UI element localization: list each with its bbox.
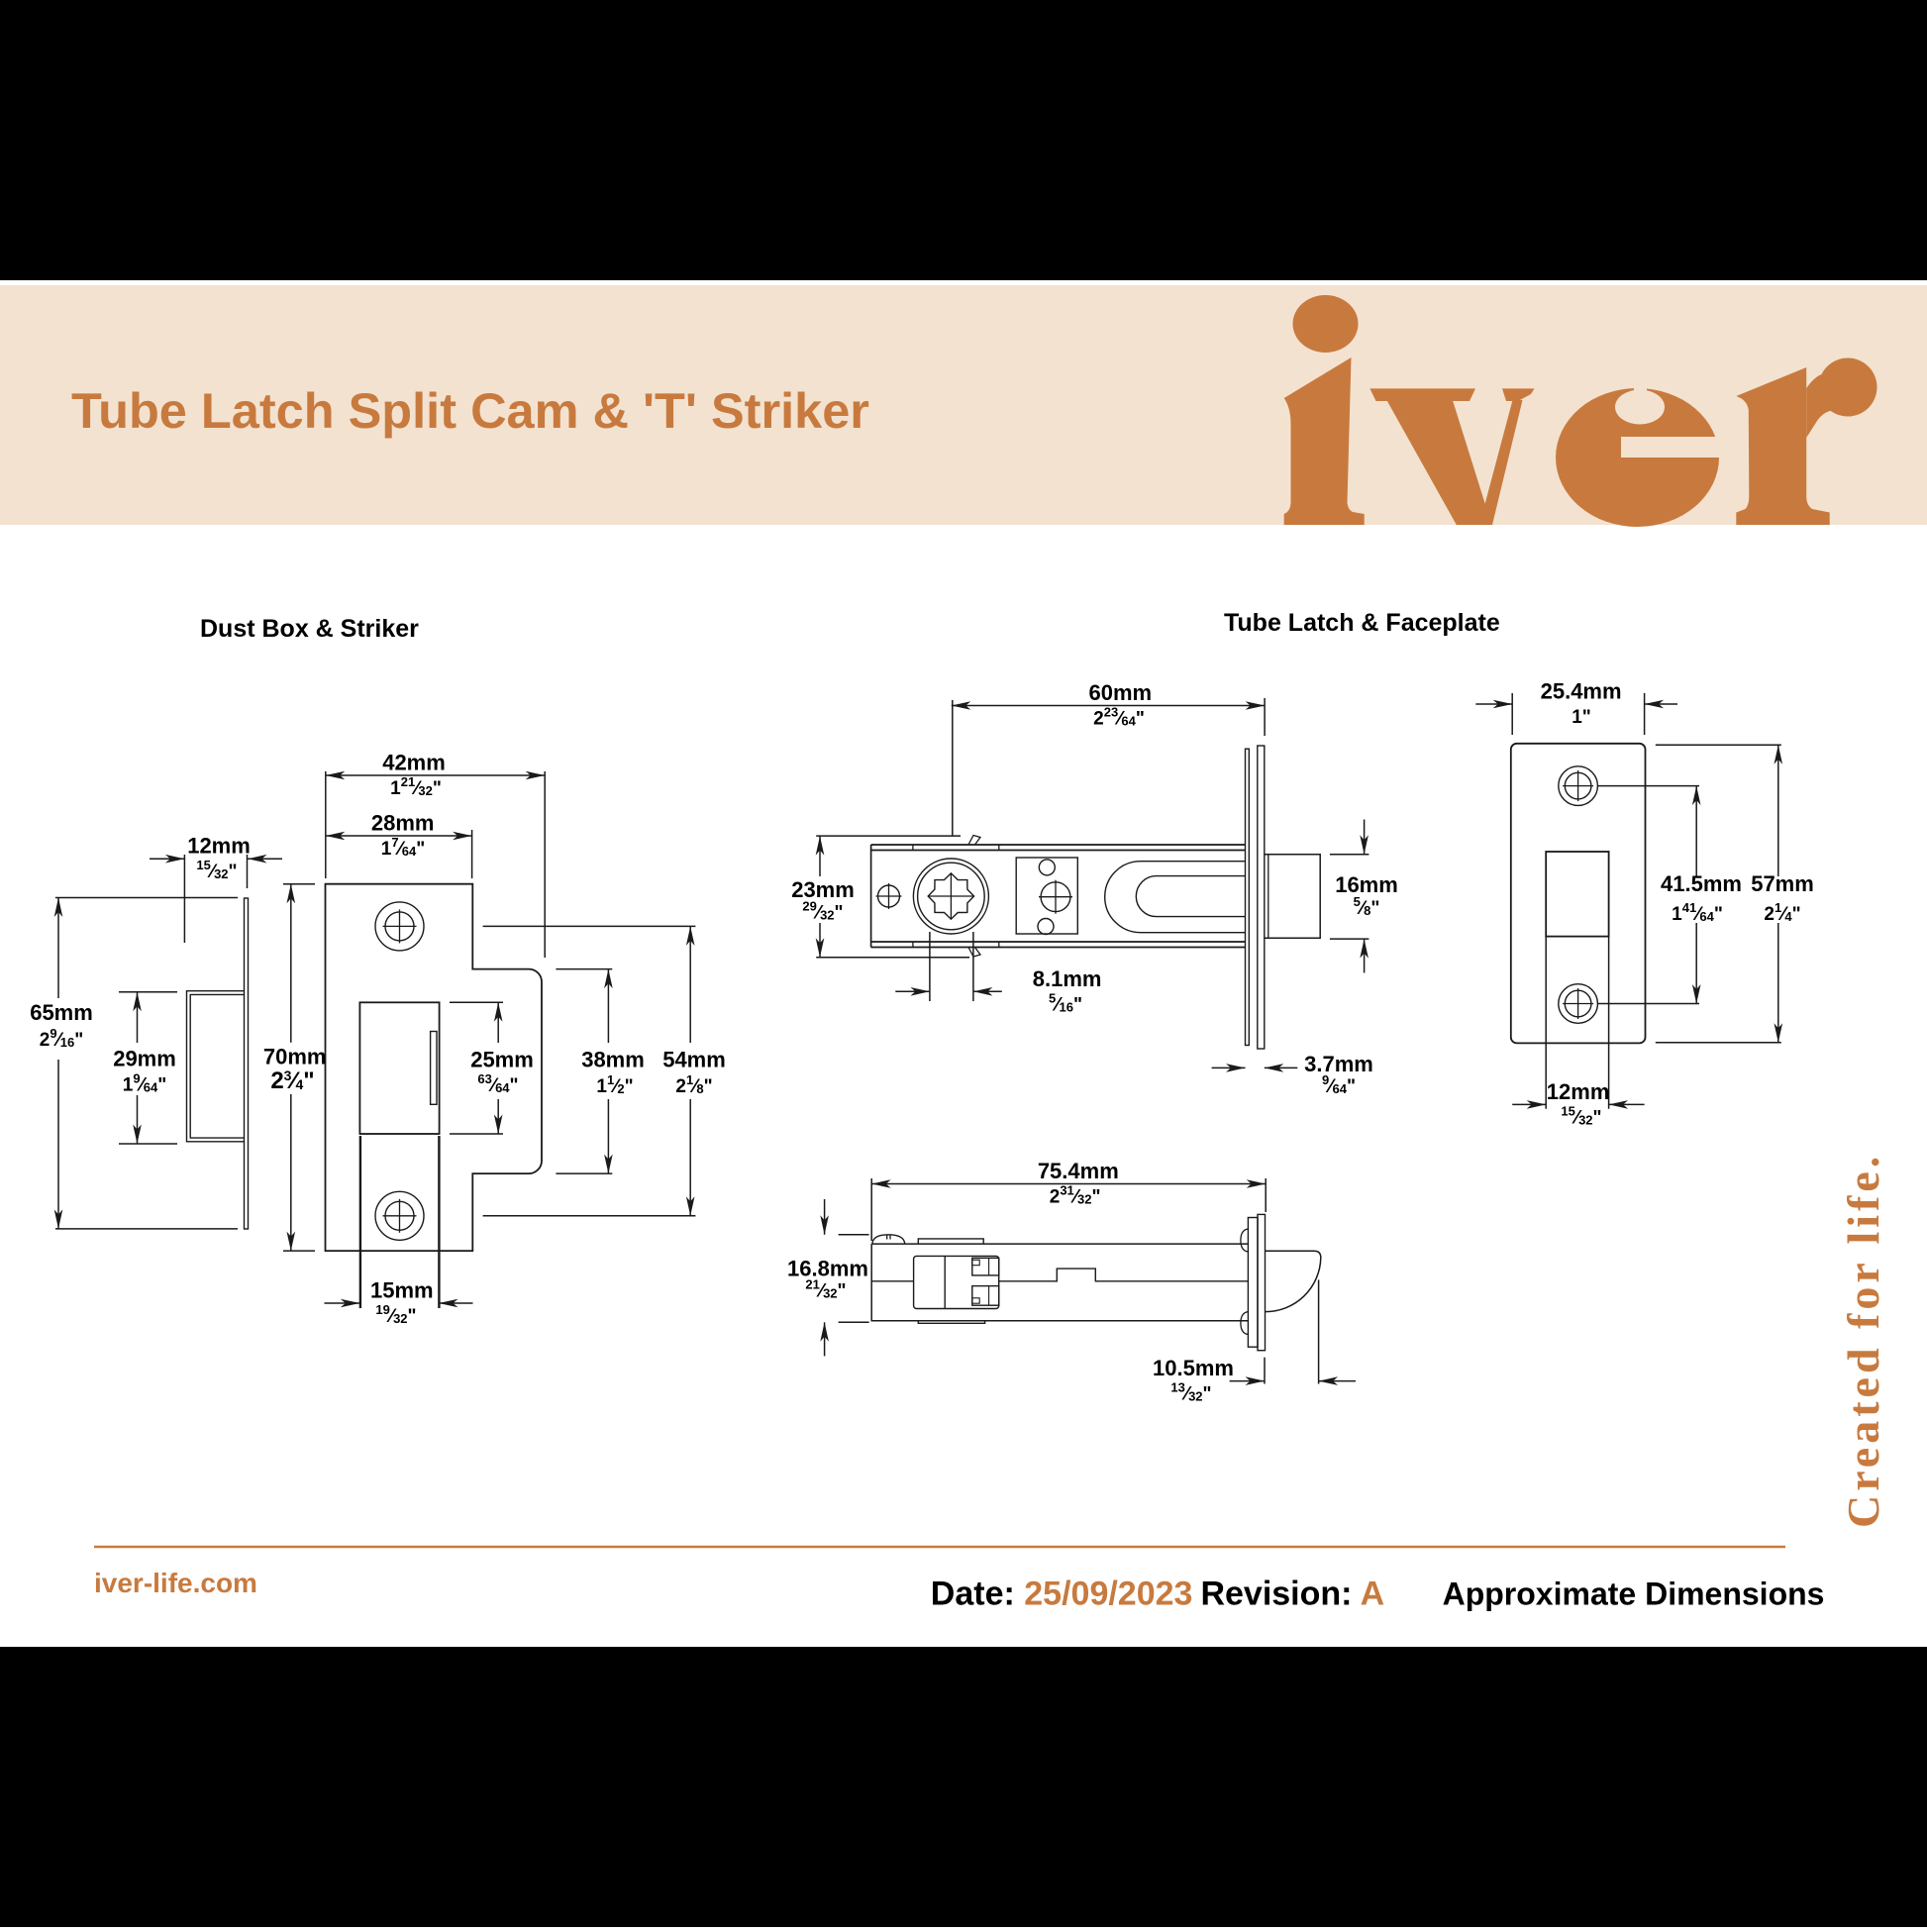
svg-text:141⁄64": 141⁄64" (1672, 900, 1723, 925)
svg-text:23mm: 23mm (791, 877, 855, 902)
svg-text:38mm: 38mm (581, 1048, 645, 1072)
svg-text:231⁄32": 231⁄32" (1050, 1183, 1101, 1208)
svg-text:23⁄4": 23⁄4" (270, 1068, 314, 1094)
svg-text:12mm: 12mm (187, 834, 251, 859)
svg-text:54mm: 54mm (662, 1048, 726, 1072)
svg-text:42mm: 42mm (382, 751, 446, 775)
svg-text:8.1mm: 8.1mm (1033, 966, 1102, 991)
svg-text:15mm: 15mm (370, 1278, 434, 1303)
svg-text:10.5mm: 10.5mm (1153, 1356, 1234, 1380)
svg-text:16mm: 16mm (1335, 872, 1398, 897)
svg-text:41.5mm: 41.5mm (1661, 871, 1742, 896)
svg-text:121⁄32": 121⁄32" (390, 774, 442, 799)
svg-text:16.8mm: 16.8mm (787, 1257, 868, 1281)
svg-text:1": 1" (1572, 707, 1591, 728)
svg-text:21⁄8": 21⁄8" (675, 1072, 712, 1097)
svg-text:25mm: 25mm (470, 1048, 534, 1072)
svg-text:Dust Box & Striker: Dust Box & Striker (200, 615, 419, 643)
svg-text:Tube Latch & Faceplate: Tube Latch & Faceplate (1224, 609, 1500, 637)
svg-text:iver-life.com: iver-life.com (94, 1568, 257, 1598)
svg-text:75.4mm: 75.4mm (1038, 1159, 1119, 1183)
svg-text:29mm: 29mm (113, 1047, 176, 1071)
svg-text:57mm: 57mm (1751, 871, 1814, 896)
svg-text:21⁄4": 21⁄4" (1764, 900, 1800, 925)
svg-text:11⁄2": 11⁄2" (596, 1072, 633, 1097)
svg-text:70mm: 70mm (263, 1045, 327, 1069)
svg-text:Tube Latch Split Cam & 'T' Str: Tube Latch Split Cam & 'T' Striker (71, 382, 869, 439)
svg-text:Date: 25/09/2023Revision: A: Date: 25/09/2023Revision: A (931, 1576, 1384, 1613)
svg-text:Created for life.: Created for life. (1838, 1153, 1888, 1528)
svg-text:60mm: 60mm (1089, 680, 1153, 705)
svg-text:28mm: 28mm (371, 811, 435, 836)
svg-text:65mm: 65mm (30, 1000, 93, 1025)
svg-text:223⁄64": 223⁄64" (1093, 705, 1145, 730)
svg-text:25.4mm: 25.4mm (1541, 679, 1622, 704)
svg-text:Approximate Dimensions: Approximate Dimensions (1443, 1576, 1825, 1612)
svg-text:3.7mm: 3.7mm (1304, 1052, 1373, 1076)
svg-text:12mm: 12mm (1547, 1079, 1610, 1104)
